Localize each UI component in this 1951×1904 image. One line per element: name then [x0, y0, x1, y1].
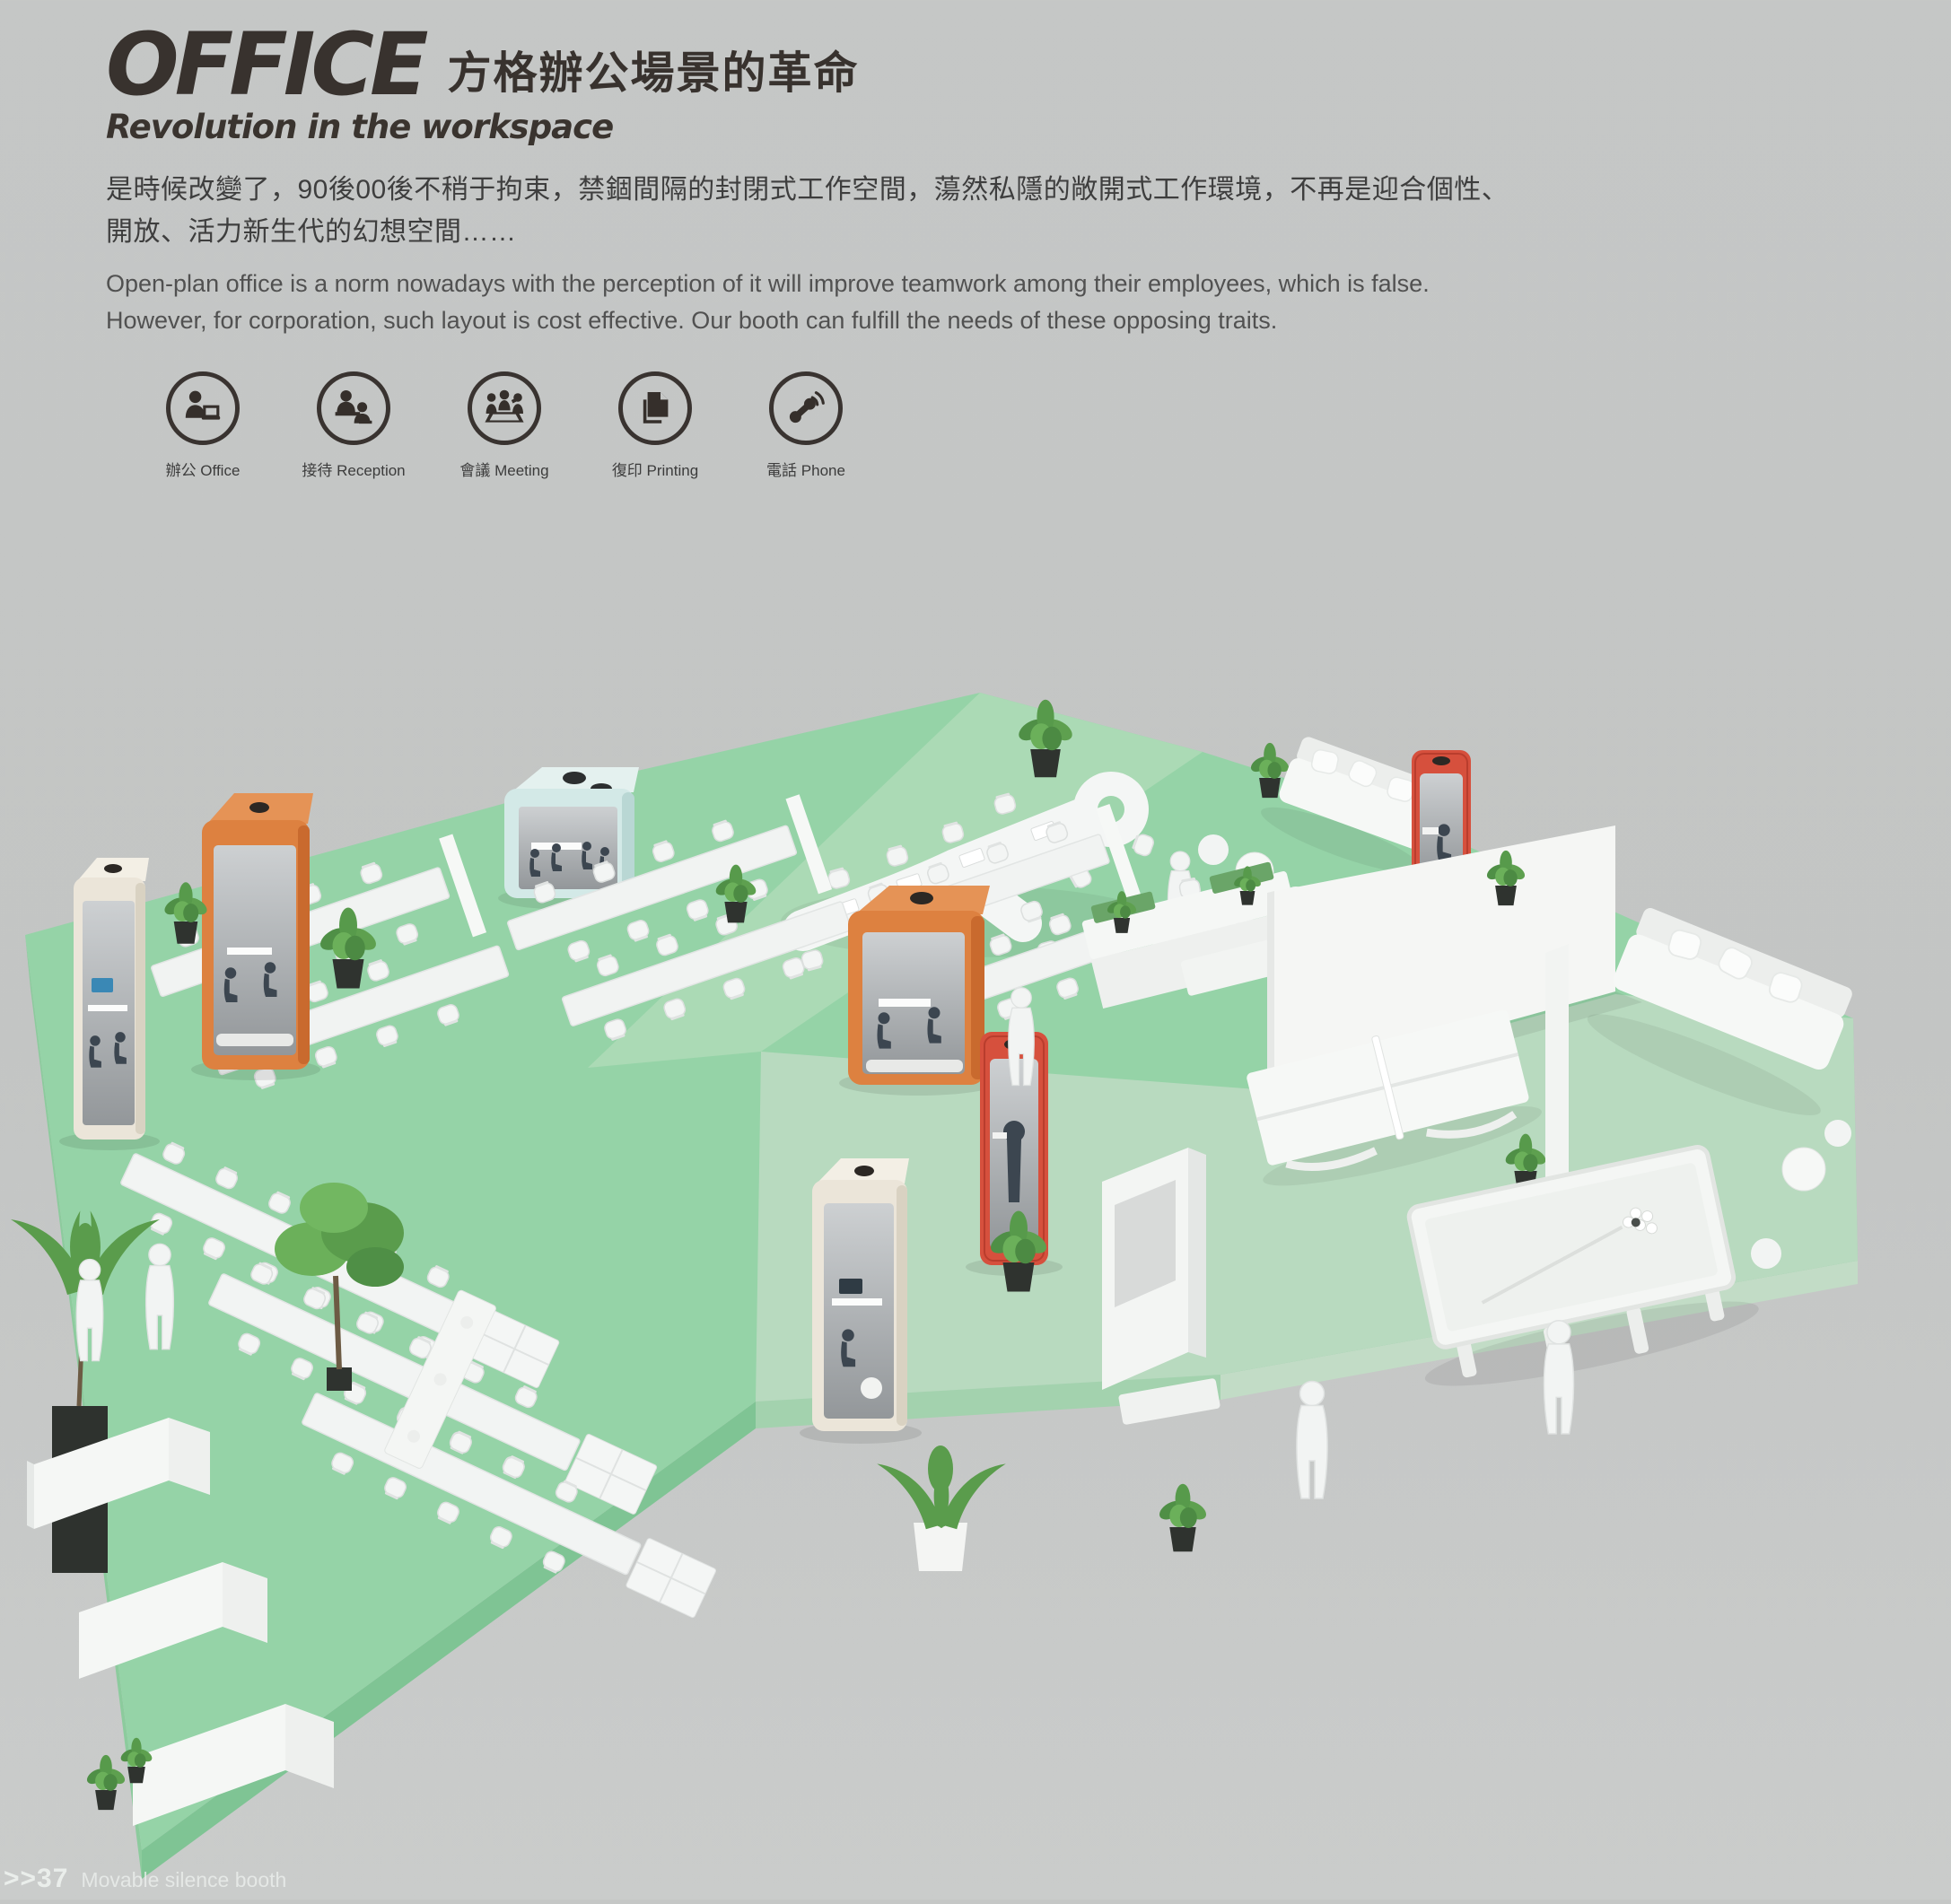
- intro-en-line-1: Open-plan office is a norm nowadays with…: [106, 266, 1883, 302]
- office-floor-render: [0, 500, 1951, 1900]
- potted-plant: [1156, 1484, 1209, 1552]
- feature-label: 辦公 Office: [166, 458, 241, 480]
- feature-meeting: 會議 Meeting: [447, 371, 562, 480]
- reception-people-icon: [317, 371, 390, 445]
- potted-plant: [84, 1755, 127, 1810]
- stool: [1751, 1238, 1781, 1269]
- printing-documents-icon: [618, 371, 692, 445]
- intro-paragraph-chinese: 是時候改變了，90後00後不稍于拘束，禁錮間隔的封閉式工作空間，蕩然私隱的敞開式…: [106, 170, 1883, 253]
- standing-figure: [1544, 1321, 1573, 1434]
- feature-reception: 接待 Reception: [296, 371, 411, 480]
- footer-caption: Movable silence booth: [81, 1868, 286, 1892]
- feature-label: 接待 Reception: [302, 458, 405, 480]
- page-subtitle: Revolution in the workspace: [106, 108, 1883, 146]
- isometric-office-scene: [0, 500, 1951, 1900]
- intro-en-line-2: However, for corporation, such layout is…: [106, 302, 1883, 339]
- intro-zh-line-1: 是時候改變了，90後00後不稍于拘束，禁錮間隔的封閉式工作空間，蕩然私隱的敞開式…: [106, 170, 1883, 212]
- intro-paragraph-english: Open-plan office is a norm nowadays with…: [106, 266, 1883, 338]
- phone-handset-icon: [769, 371, 843, 445]
- feature-label: 電話 Phone: [766, 458, 845, 480]
- title-row: OFFICE 方格辦公場景的革命: [106, 25, 1883, 104]
- page-title: OFFICE: [106, 25, 424, 104]
- brochure-page: { "header": { "title_en": "OFFICE", "tit…: [0, 0, 1951, 1900]
- booth-screen: [92, 978, 113, 992]
- white-duo-booth-left: [59, 858, 160, 1150]
- orange-meeting-booth-left: [191, 793, 320, 1080]
- office-person-laptop-icon: [166, 371, 240, 445]
- orange-meeting-booth-center: [839, 886, 997, 1096]
- coffee-table: [1782, 1148, 1825, 1191]
- feature-office: 辦公 Office: [145, 371, 260, 480]
- booth-laptop: [839, 1279, 862, 1294]
- white-pot-palm: [877, 1445, 1006, 1571]
- feature-phone: 電話 Phone: [748, 371, 863, 480]
- sofa-partition: [1545, 944, 1569, 1195]
- feature-printing: 復印 Printing: [598, 371, 713, 480]
- pool-player-figure: [1297, 1382, 1327, 1499]
- intro-zh-line-2: 開放、活力新生代的幻想空間……: [106, 212, 1883, 254]
- feature-icon-row: 辦公 Office 接待 Reception: [145, 371, 863, 480]
- feature-label: 復印 Printing: [612, 458, 698, 480]
- white-solo-booth-center: [800, 1158, 922, 1444]
- side-table: [1824, 1120, 1851, 1147]
- page-header: OFFICE 方格辦公場景的革命 Revolution in the works…: [106, 25, 1883, 338]
- meeting-group-icon: [468, 371, 541, 445]
- page-title-chinese: 方格辦公場景的革命: [448, 50, 860, 104]
- lounge-stool: [1198, 834, 1229, 865]
- feature-label: 會議 Meeting: [459, 458, 548, 480]
- page-number-marker: >>37: [4, 1864, 68, 1894]
- page-footer: >>37 Movable silence booth: [4, 1864, 286, 1894]
